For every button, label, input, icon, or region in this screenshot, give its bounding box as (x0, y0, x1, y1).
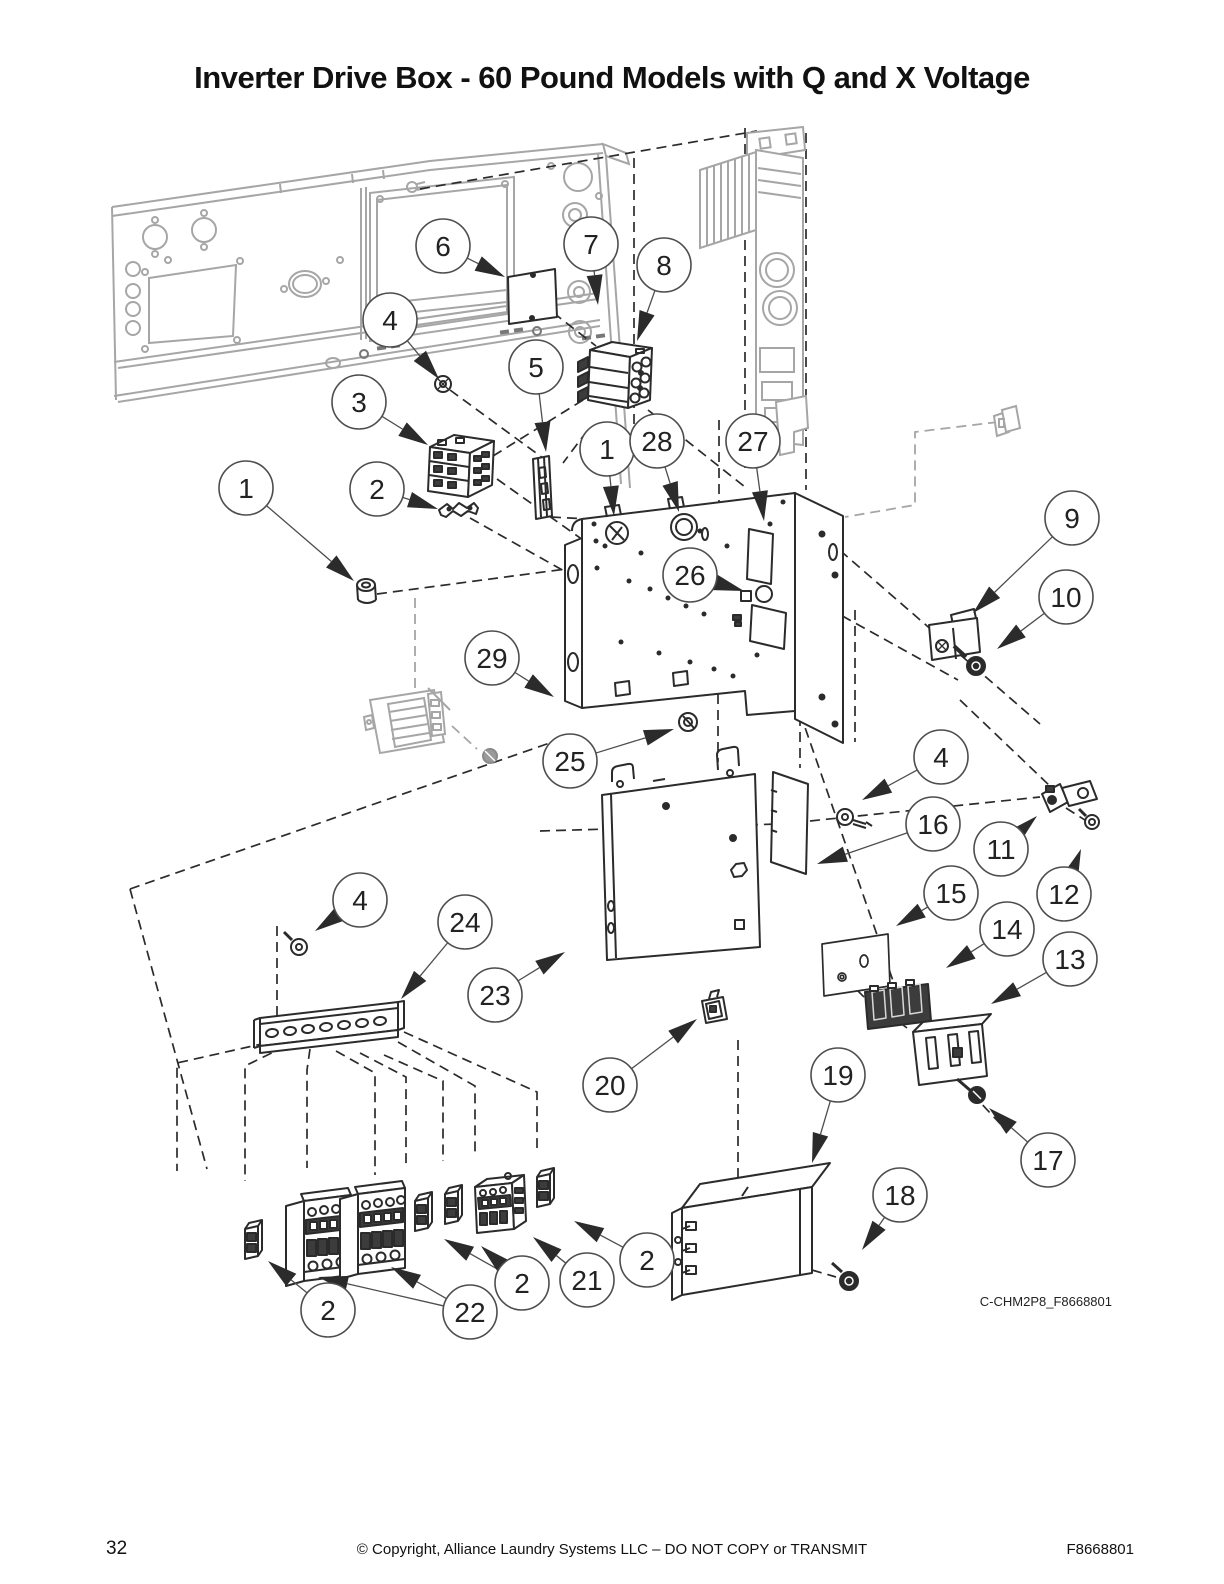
end-stop-2 (537, 1168, 554, 1207)
figure-code: C-CHM2P8_F8668801 (980, 1294, 1112, 1309)
leader-arrowhead (574, 1221, 604, 1242)
callout-18: 18 (862, 1168, 927, 1250)
junction-box-8 (578, 342, 652, 408)
callout-number: 6 (435, 231, 451, 262)
contactor-22b (340, 1181, 405, 1279)
callout-number: 1 (599, 434, 615, 465)
callout-number: 11 (986, 834, 1015, 865)
leader-line (1017, 972, 1046, 989)
leader-line (403, 497, 410, 499)
callout-3: 3 (332, 375, 428, 445)
callout-number: 13 (1054, 944, 1085, 975)
callout-number: 4 (382, 305, 398, 336)
screw-4-top (435, 376, 451, 392)
leader-arrowhead (401, 971, 426, 999)
footer-copyright: © Copyright, Alliance Laundry Systems LL… (0, 1541, 1224, 1558)
leader-line (845, 833, 907, 854)
leader-line (632, 1037, 674, 1069)
callout-number: 23 (479, 980, 510, 1011)
page-footer: 32 © Copyright, Alliance Laundry Systems… (0, 1538, 1224, 1568)
callout-5: 5 (509, 340, 563, 452)
leader-line (347, 1284, 443, 1306)
leader-line (266, 506, 331, 562)
exploded-diagram: 6784531212827269102925416111215141342423… (0, 0, 1224, 1584)
leader-line (417, 1282, 446, 1299)
callout-number: 9 (1064, 503, 1080, 534)
callout-number: 22 (454, 1297, 485, 1328)
callout-10: 10 (997, 570, 1093, 649)
callout-number: 8 (656, 250, 672, 281)
fuse-holder-14 (865, 980, 931, 1029)
cover-plate-6 (508, 269, 557, 324)
end-stop-2 (415, 1192, 432, 1231)
cutout-27 (747, 529, 773, 584)
callout-number: 19 (822, 1060, 853, 1091)
bracket-9 (929, 609, 980, 660)
leader-line (879, 1217, 885, 1225)
leader-arrowhead (643, 729, 674, 745)
leader-line (420, 943, 448, 976)
callout-number: 10 (1050, 582, 1081, 613)
leader-arrowhead (398, 422, 428, 445)
footer-doc-number: F8668801 (1066, 1541, 1134, 1558)
callout-1: 1 (580, 422, 634, 516)
end-stop-2 (445, 1185, 462, 1224)
leader-arrowhead (946, 945, 976, 968)
callout-number: 2 (639, 1245, 655, 1276)
callout-23: 23 (468, 952, 565, 1022)
callout-20: 20 (583, 1019, 697, 1112)
leader-arrowhead (326, 555, 354, 581)
leader-arrowhead (812, 1132, 828, 1163)
hole-26 (756, 586, 772, 602)
callout-4: 4 (862, 730, 968, 800)
callout-number: 27 (737, 426, 768, 457)
callout-number: 21 (571, 1265, 602, 1296)
callout-number: 16 (917, 809, 948, 840)
leader-line (971, 944, 984, 952)
grommet-1 (357, 579, 376, 603)
callout-number: 28 (641, 426, 672, 457)
leader-arrowhead (989, 1108, 1017, 1134)
leader-arrowhead (997, 625, 1026, 649)
callout-number: 4 (933, 742, 949, 773)
screw-4-right (837, 809, 872, 828)
end-stop-2 (245, 1220, 262, 1259)
label-plate-15 (822, 934, 890, 996)
callout-number: 2 (320, 1295, 336, 1326)
leader-line (647, 290, 655, 312)
leader-line (821, 1101, 831, 1134)
leader-arrowhead (991, 982, 1021, 1004)
drive-bracket-phantom (776, 396, 808, 455)
inverter-box (565, 493, 843, 743)
leader-line (596, 738, 646, 753)
leader-line (556, 1256, 565, 1263)
contactor-block-3 (428, 435, 494, 497)
callout-number: 15 (935, 878, 966, 909)
leader-arrowhead (817, 847, 848, 864)
callout-number: 1 (238, 473, 254, 504)
callout-number: 3 (351, 387, 367, 418)
leader-line (515, 672, 529, 681)
leader-line (665, 467, 670, 484)
leader-arrowhead (535, 421, 551, 452)
callout-number: 5 (528, 352, 544, 383)
leader-line (467, 258, 478, 264)
enclosure-19 (672, 1163, 830, 1300)
leader-arrowhead (896, 904, 926, 926)
callout-8: 8 (637, 238, 691, 341)
callout-7: 7 (564, 217, 618, 305)
callout-19: 19 (811, 1048, 865, 1163)
callout-25: 25 (543, 729, 674, 788)
callout-11: 11 (974, 816, 1037, 876)
clip-20 (702, 990, 727, 1023)
leader-line (382, 416, 403, 429)
hole-28 (671, 514, 697, 540)
leader-line (518, 968, 539, 981)
callout-29: 29 (465, 631, 554, 697)
leader-line (922, 907, 928, 911)
leader-arrowhead (524, 674, 554, 697)
leader-arrowhead (637, 310, 655, 341)
callout-28: 28 (630, 414, 684, 512)
callout-number: 18 (884, 1180, 915, 1211)
callout-2: 2 (350, 462, 438, 516)
callout-number: 14 (991, 914, 1022, 945)
fuse-block-13 (913, 1014, 991, 1085)
callout-number: 2 (514, 1268, 530, 1299)
leader-line (600, 1235, 623, 1247)
callout-number: 29 (476, 643, 507, 674)
bracket-2 (439, 503, 478, 517)
screw-4-left (284, 932, 307, 955)
screw-17 (957, 1079, 985, 1103)
callout-number: 24 (449, 907, 480, 938)
leader-arrowhead (407, 492, 438, 509)
callout-15: 15 (896, 866, 978, 926)
callout-4: 4 (363, 293, 439, 379)
contactor-21 (475, 1173, 526, 1233)
callout-4: 4 (315, 873, 387, 931)
callout-layer: 6784531212827269102925416111215141342423… (219, 217, 1099, 1339)
manual-page: Inverter Drive Box - 60 Pound Models wit… (0, 0, 1224, 1584)
leader-arrowhead (391, 1267, 421, 1289)
mounting-plate-23 (602, 747, 760, 960)
leader-line (1021, 613, 1044, 631)
leader-arrowhead (475, 256, 505, 277)
leader-line (610, 476, 611, 486)
leader-line (757, 468, 760, 492)
callout-number: 20 (594, 1070, 625, 1101)
callout-number: 2 (369, 474, 385, 505)
leader-line (1012, 1128, 1028, 1142)
leader-arrowhead (533, 1237, 561, 1262)
callout-12: 12 (1037, 849, 1091, 921)
callout-number: 4 (352, 885, 368, 916)
leader-arrowhead (862, 1221, 886, 1250)
relay-module-phantom (364, 688, 497, 763)
din-rail-5 (533, 456, 552, 519)
hinge-11 (1042, 781, 1097, 812)
callout-6: 6 (416, 219, 505, 277)
leader-arrowhead (668, 1019, 697, 1044)
leader-line (539, 394, 542, 422)
callout-number: 7 (583, 229, 599, 260)
leader-arrowhead (862, 779, 892, 800)
plate-16 (771, 772, 808, 874)
callout-number: 25 (554, 746, 585, 777)
leader-arrowhead (444, 1239, 474, 1261)
leader-line (888, 770, 917, 786)
callout-number: 26 (674, 560, 705, 591)
callout-16: 16 (817, 797, 960, 864)
leader-arrowhead (535, 952, 565, 975)
callout-17: 17 (989, 1108, 1075, 1187)
callout-number: 17 (1032, 1145, 1063, 1176)
inverter-drive-phantom (700, 127, 1020, 455)
callout-1: 1 (219, 461, 354, 581)
callout-number: 12 (1048, 879, 1079, 910)
